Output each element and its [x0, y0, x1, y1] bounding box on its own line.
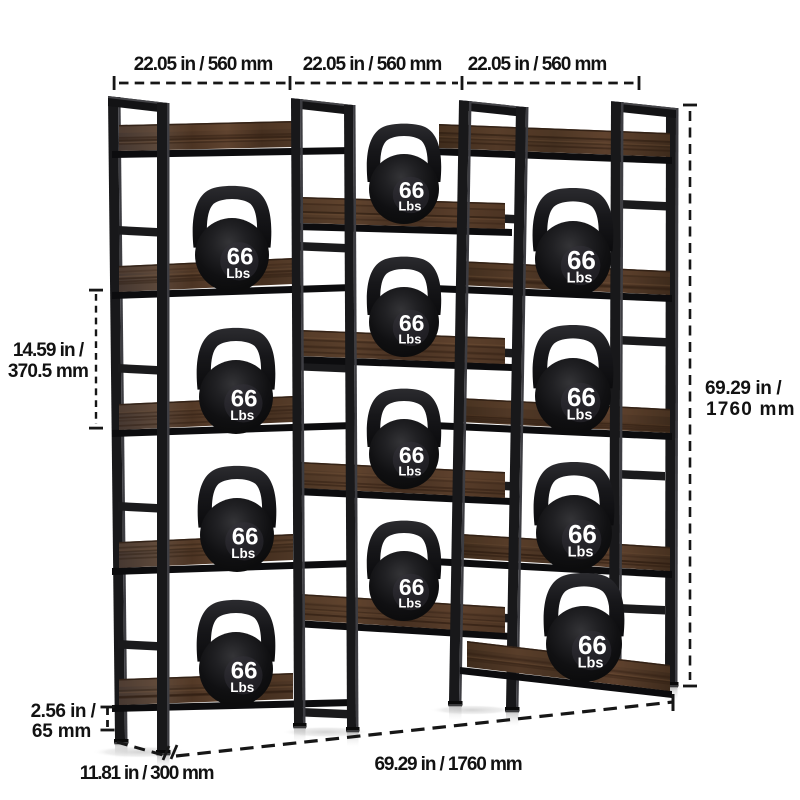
svg-text:2.56 in /: 2.56 in / — [31, 701, 97, 722]
svg-text:22.05 in / 560 mm: 22.05 in / 560 mm — [303, 54, 442, 75]
svg-text:65 mm: 65 mm — [32, 721, 91, 742]
svg-text:370.5 mm: 370.5 mm — [8, 361, 88, 382]
svg-text:Lbs: Lbs — [226, 266, 250, 281]
svg-text:Lbs: Lbs — [398, 596, 421, 611]
svg-text:1760 mm: 1760 mm — [706, 399, 796, 420]
svg-text:Lbs: Lbs — [398, 332, 421, 347]
svg-text:Lbs: Lbs — [578, 656, 604, 672]
svg-text:22.05 in / 560 mm: 22.05 in / 560 mm — [468, 54, 607, 75]
svg-text:Lbs: Lbs — [230, 680, 254, 695]
svg-text:Lbs: Lbs — [231, 546, 255, 561]
svg-text:11.81 in / 300 mm: 11.81 in / 300 mm — [80, 763, 214, 784]
svg-text:Lbs: Lbs — [230, 408, 254, 423]
svg-text:Lbs: Lbs — [568, 545, 594, 561]
svg-text:69.29 in / 1760 mm: 69.29 in / 1760 mm — [374, 754, 521, 775]
svg-text:22.05 in / 560 mm: 22.05 in / 560 mm — [134, 54, 273, 75]
svg-text:14.59 in /: 14.59 in / — [13, 340, 85, 361]
svg-text:Lbs: Lbs — [398, 464, 421, 479]
svg-text:69.29 in /: 69.29 in / — [705, 378, 782, 399]
svg-text:Lbs: Lbs — [567, 408, 593, 424]
svg-text:Lbs: Lbs — [398, 199, 421, 214]
svg-text:Lbs: Lbs — [567, 271, 593, 287]
